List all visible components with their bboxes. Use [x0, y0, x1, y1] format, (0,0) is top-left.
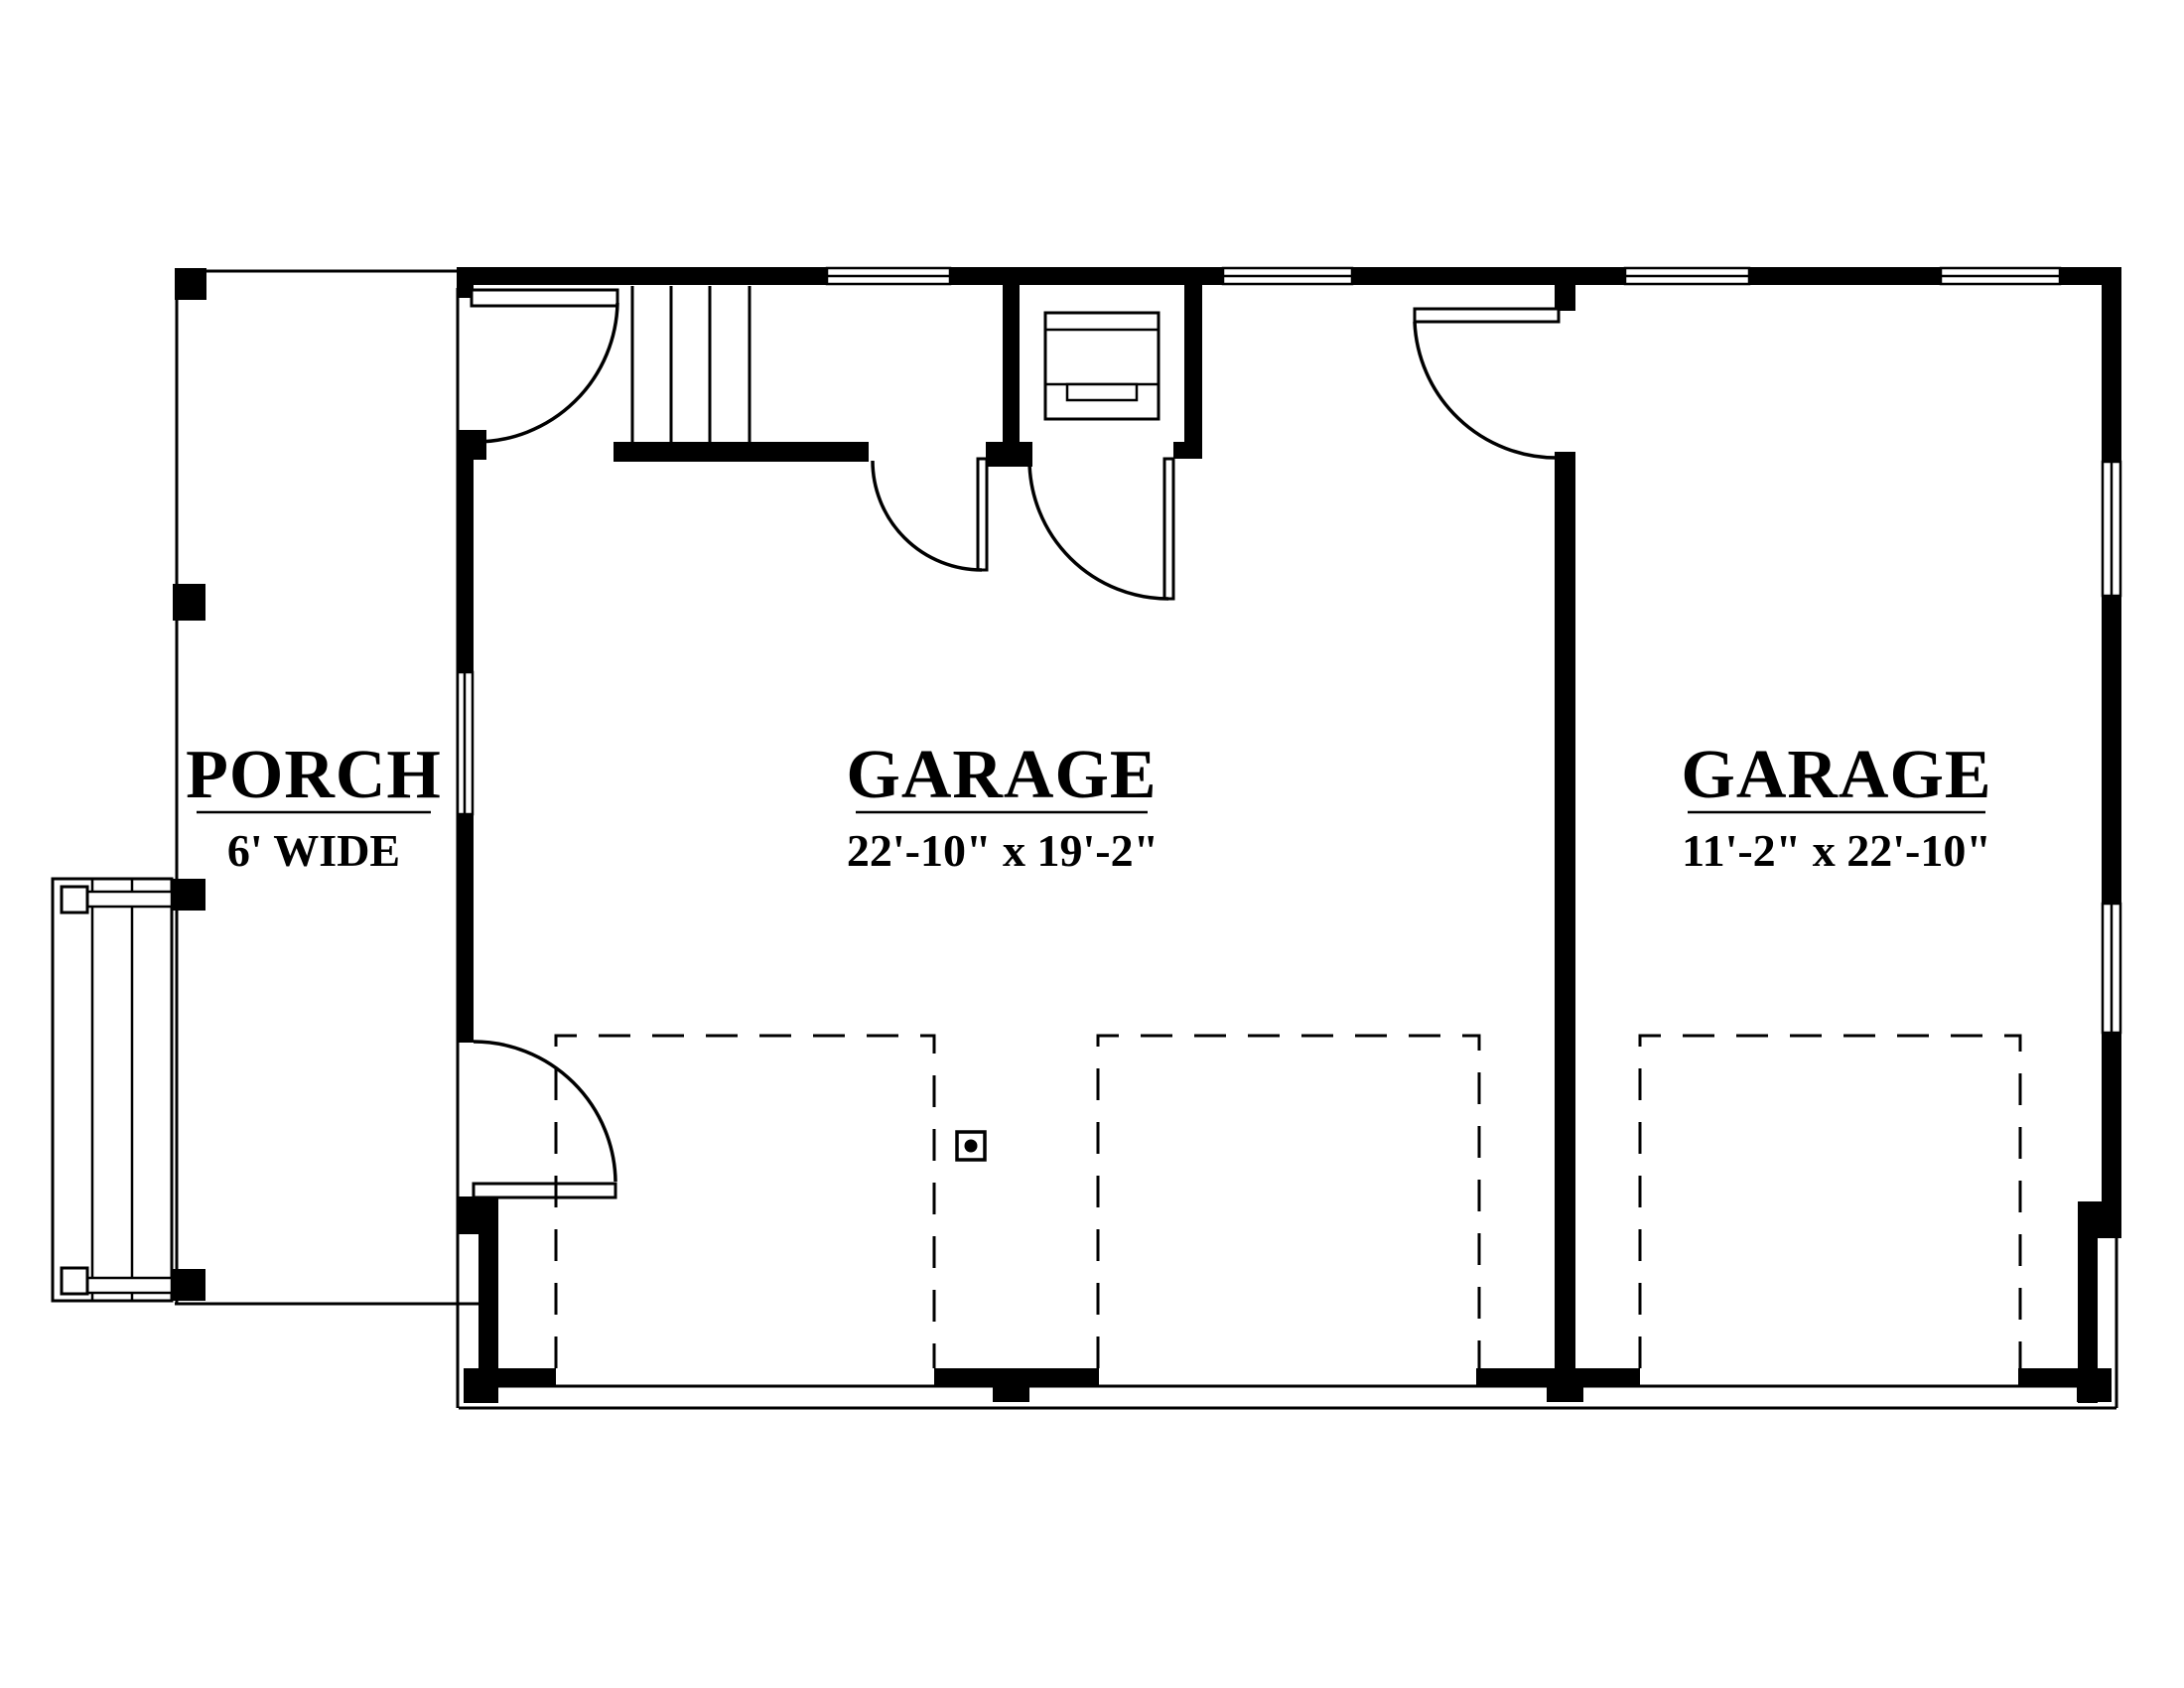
room-dimensions: 6' WIDE — [227, 825, 400, 876]
window — [1941, 268, 2060, 284]
garage-divider-wall — [1555, 452, 1575, 1370]
overhead-garage-doors — [556, 1036, 2020, 1368]
room-dimensions: 22'-10" x 19'-2" — [847, 825, 1159, 876]
garage-connecting-door — [1415, 309, 1559, 458]
porch-column — [175, 268, 206, 300]
porch-column — [172, 879, 205, 911]
south-wall-pier — [993, 1385, 1029, 1402]
porch-entry-door-north — [472, 290, 617, 442]
window — [1625, 268, 1749, 284]
room-label-garage-side: GARAGE 11'-2" x 22'-10" — [1681, 737, 1991, 876]
west-wall-segment — [457, 814, 474, 1043]
stair-hall-wall — [614, 442, 869, 462]
room-title: GARAGE — [846, 737, 1157, 813]
closet-wall-right — [1184, 285, 1202, 442]
west-wall-jamb — [459, 1196, 498, 1234]
south-wall-segment — [934, 1368, 1099, 1385]
stairs — [632, 286, 750, 442]
window — [2103, 462, 2120, 596]
north-wall-segment — [950, 267, 1223, 285]
east-wall-segment — [2102, 1033, 2121, 1218]
room-dimensions: 11'-2" x 22'-10" — [1682, 825, 1991, 876]
stair-hall-door — [873, 459, 987, 570]
south-wall-pier — [1547, 1385, 1583, 1402]
east-wall-jog — [2078, 1201, 2121, 1238]
south-wall-segment — [1476, 1368, 1640, 1385]
window — [827, 268, 950, 284]
south-wall-segment — [464, 1368, 556, 1385]
drain-dot — [965, 1140, 978, 1153]
porch-column — [172, 1269, 205, 1301]
steps-outline — [53, 879, 172, 1301]
newel-post-top — [62, 887, 87, 913]
overhead-door-track — [1098, 1036, 1479, 1368]
north-wall-segment — [1352, 267, 1625, 285]
newel-post-bottom — [62, 1268, 87, 1294]
water-heater — [1045, 313, 1159, 419]
closet-wall-jamb — [986, 442, 1032, 467]
window — [2103, 904, 2120, 1033]
east-wall-segment — [2102, 267, 2121, 462]
south-wall-segment — [2018, 1368, 2078, 1387]
closet-wall-left — [1003, 285, 1020, 442]
slab-outline — [459, 1221, 2116, 1408]
steps-top-tread — [86, 892, 172, 907]
floor-plan-sheet: PORCH 6' WIDE GARAGE 22'-10" x 19'-2" GA… — [0, 0, 2184, 1688]
east-wall-segment — [2102, 596, 2121, 904]
room-label-porch: PORCH 6' WIDE — [186, 737, 442, 876]
steps-bottom-tread — [86, 1278, 172, 1293]
west-wall-segment — [478, 1234, 498, 1370]
east-wall-segment — [2078, 1238, 2098, 1403]
porch-steps — [53, 879, 172, 1301]
water-heater-handle — [1067, 384, 1137, 400]
north-wall-segment — [1749, 267, 1941, 285]
room-title: GARAGE — [1681, 737, 1991, 813]
room-title: PORCH — [186, 737, 442, 813]
overhead-door-track — [1640, 1036, 2020, 1368]
window — [1223, 268, 1352, 284]
garage-divider-wall-stub — [1555, 285, 1575, 311]
window — [458, 672, 473, 814]
room-label-garage-main: GARAGE 22'-10" x 19'-2" — [846, 737, 1159, 876]
porch-column — [173, 584, 205, 621]
west-wall-jamb — [457, 430, 486, 460]
overhead-door-track — [556, 1036, 934, 1368]
porch-entry-door-south — [474, 1042, 615, 1197]
west-wall-segment — [457, 460, 474, 672]
floor-drain — [957, 1132, 985, 1160]
north-wall-segment — [457, 267, 827, 285]
closet-door — [1029, 459, 1173, 599]
closet-wall-jamb — [1173, 442, 1202, 459]
windows — [458, 268, 2120, 1033]
